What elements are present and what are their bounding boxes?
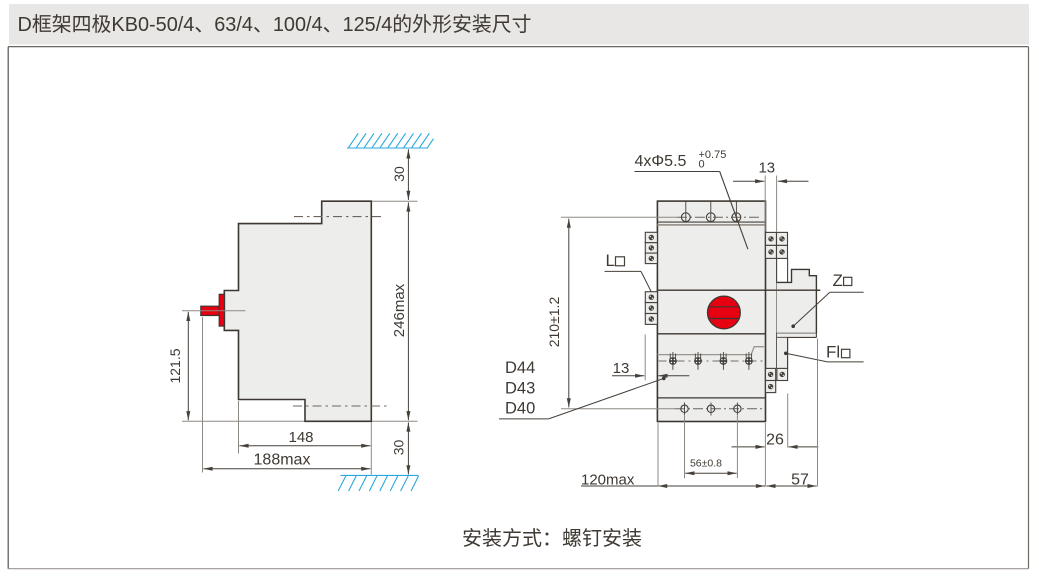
svg-text:26: 26 <box>766 431 784 448</box>
svg-text:4xΦ5.5: 4xΦ5.5 <box>635 153 687 170</box>
svg-text:56±0.8: 56±0.8 <box>690 458 722 470</box>
svg-text:210±1.2: 210±1.2 <box>546 297 562 348</box>
svg-text:246max: 246max <box>391 283 408 337</box>
svg-text:30: 30 <box>391 166 407 182</box>
svg-text:Z: Z <box>833 271 843 290</box>
svg-text:13: 13 <box>758 160 775 177</box>
svg-text:121.5: 121.5 <box>167 348 183 383</box>
svg-text:安装方式：螺钉安装: 安装方式：螺钉安装 <box>462 527 642 550</box>
svg-text:D40: D40 <box>505 400 535 418</box>
svg-text:Fl: Fl <box>826 342 840 361</box>
svg-text:30: 30 <box>391 440 407 456</box>
svg-text:188max: 188max <box>254 452 311 469</box>
svg-text:D框架四极KB0-50/4、63/4、100/4、125/4: D框架四极KB0-50/4、63/4、100/4、125/4的外形安装尺寸 <box>18 13 532 36</box>
svg-text:D43: D43 <box>505 379 535 397</box>
svg-text:148: 148 <box>288 429 313 446</box>
svg-text:0: 0 <box>699 159 705 171</box>
svg-text:L: L <box>606 251 615 270</box>
svg-text:13: 13 <box>613 360 630 377</box>
svg-text:D44: D44 <box>505 359 535 377</box>
